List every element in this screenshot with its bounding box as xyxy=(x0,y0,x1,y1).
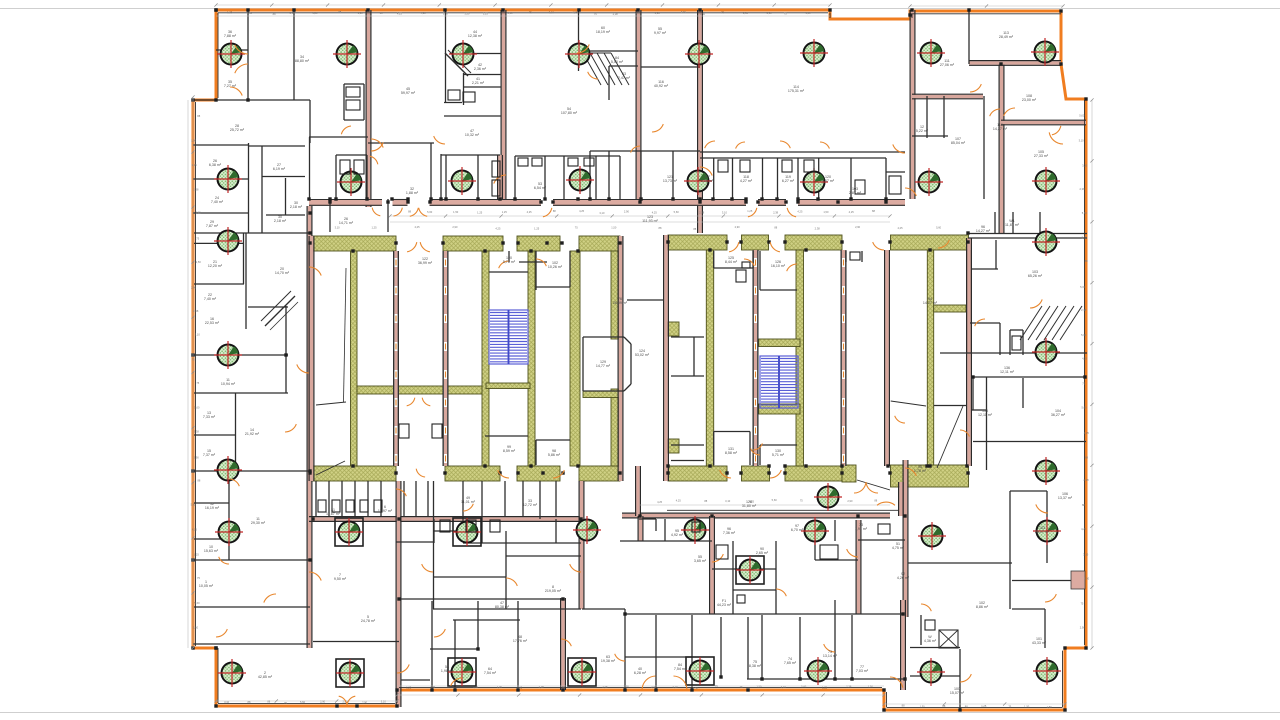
svg-text:18,19 m²: 18,19 m² xyxy=(596,30,611,34)
svg-text:3,10: 3,10 xyxy=(381,699,387,703)
svg-text:5,60: 5,60 xyxy=(936,226,942,230)
svg-text:4,25: 4,25 xyxy=(1082,357,1088,361)
svg-text:1,78 m²: 1,78 m² xyxy=(914,469,927,473)
svg-text:3,10: 3,10 xyxy=(1079,138,1085,142)
svg-text:2,38: 2,38 xyxy=(1079,187,1085,191)
svg-text:2,90: 2,90 xyxy=(452,225,458,229)
svg-text:8,58 m²: 8,58 m² xyxy=(725,451,738,455)
svg-text:107,80 m²: 107,80 m² xyxy=(561,111,578,115)
svg-text:111,93 m²: 111,93 m² xyxy=(642,219,658,223)
svg-text:5,60: 5,60 xyxy=(1081,333,1087,337)
svg-text:2,47 m²: 2,47 m² xyxy=(618,76,631,80)
svg-text:15,07 m²: 15,07 m² xyxy=(950,691,965,695)
svg-text:1,50: 1,50 xyxy=(611,226,617,230)
svg-text:1,25: 1,25 xyxy=(655,11,661,15)
svg-text:5,22 m²: 5,22 m² xyxy=(916,129,929,133)
svg-text:6,27 m²: 6,27 m² xyxy=(782,179,795,183)
svg-text:1,25: 1,25 xyxy=(477,210,483,214)
svg-text:1,50: 1,50 xyxy=(693,686,699,690)
svg-text:7,40 m²: 7,40 m² xyxy=(204,297,217,301)
svg-text:17,76 m²: 17,76 m² xyxy=(513,639,528,643)
svg-text:12,97 m²: 12,97 m² xyxy=(378,509,393,513)
svg-text:6,70 m²: 6,70 m² xyxy=(791,528,804,532)
svg-text:29,30 m²: 29,30 m² xyxy=(251,521,266,525)
svg-text:175,31 m²: 175,31 m² xyxy=(788,89,805,93)
svg-text:2,90: 2,90 xyxy=(191,285,197,289)
svg-text:12,38 m²: 12,38 m² xyxy=(468,34,483,38)
svg-text:10,32 m²: 10,32 m² xyxy=(465,133,480,137)
svg-text:31,80 m²: 31,80 m² xyxy=(742,504,757,508)
svg-text:2,18 m²: 2,18 m² xyxy=(274,219,287,223)
svg-text:80,38 m²: 80,38 m² xyxy=(495,605,510,609)
svg-text:26,99 m²: 26,99 m² xyxy=(613,301,628,305)
svg-text:2,38: 2,38 xyxy=(624,684,630,688)
svg-text:4,27 m²: 4,27 m² xyxy=(740,179,753,183)
svg-text:10,94 m²: 10,94 m² xyxy=(221,382,236,386)
svg-text:4,25: 4,25 xyxy=(397,12,403,16)
svg-text:1,50: 1,50 xyxy=(196,260,202,264)
svg-text:4,26 m²: 4,26 m² xyxy=(897,576,910,580)
svg-text:7,33 m²: 7,33 m² xyxy=(203,415,216,419)
svg-text:1,25: 1,25 xyxy=(406,685,412,689)
svg-text:27,06 m²: 27,06 m² xyxy=(940,63,955,67)
svg-text:3,10: 3,10 xyxy=(722,211,728,215)
svg-text:85,04 m²: 85,04 m² xyxy=(951,141,966,145)
svg-text:88,80 m²: 88,80 m² xyxy=(295,59,310,63)
svg-text:8,86 m²: 8,86 m² xyxy=(976,605,989,609)
svg-text:5,60: 5,60 xyxy=(1081,406,1087,410)
svg-text:2,36 m²: 2,36 m² xyxy=(474,67,487,71)
svg-text:3,10: 3,10 xyxy=(1083,553,1089,557)
svg-text:2,38: 2,38 xyxy=(1083,478,1089,482)
svg-text:1,91 m²: 1,91 m² xyxy=(855,527,868,531)
svg-text:2,38: 2,38 xyxy=(815,227,821,231)
svg-text:13,14 m²: 13,14 m² xyxy=(823,654,838,658)
svg-text:2,21 m²: 2,21 m² xyxy=(472,81,485,85)
svg-text:2,90: 2,90 xyxy=(194,456,200,460)
svg-text:2,38: 2,38 xyxy=(602,685,608,689)
svg-text:14,77 m²: 14,77 m² xyxy=(596,364,611,368)
svg-text:1,25: 1,25 xyxy=(981,704,987,708)
svg-text:8,59 m²: 8,59 m² xyxy=(503,449,516,453)
svg-text:5,60: 5,60 xyxy=(517,686,523,690)
svg-text:1,25: 1,25 xyxy=(371,226,377,230)
svg-text:4,25: 4,25 xyxy=(797,209,803,213)
svg-text:2,38: 2,38 xyxy=(743,11,749,15)
svg-text:4,25: 4,25 xyxy=(849,210,855,214)
svg-text:5,50 m²: 5,50 m² xyxy=(611,60,624,64)
svg-text:2,90: 2,90 xyxy=(847,499,853,503)
svg-text:1,98 m²: 1,98 m² xyxy=(441,669,454,673)
svg-text:2,38: 2,38 xyxy=(1082,236,1088,240)
svg-text:4,36 m²: 4,36 m² xyxy=(924,639,937,643)
svg-text:5,60: 5,60 xyxy=(801,684,807,688)
svg-text:2,90: 2,90 xyxy=(195,211,201,215)
svg-text:28,49 m²: 28,49 m² xyxy=(999,35,1014,39)
svg-text:7,40 m²: 7,40 m² xyxy=(211,200,224,204)
svg-text:7,54 m²: 7,54 m² xyxy=(674,667,687,671)
svg-text:3,10: 3,10 xyxy=(335,226,341,230)
svg-text:1,50: 1,50 xyxy=(247,11,253,15)
svg-text:7,87 m²: 7,87 m² xyxy=(206,224,219,228)
svg-text:7,54 m²: 7,54 m² xyxy=(484,671,497,675)
svg-text:1,50: 1,50 xyxy=(868,685,874,689)
svg-text:1,50: 1,50 xyxy=(1084,577,1090,581)
svg-text:86,17 m²: 86,17 m² xyxy=(1035,530,1050,534)
svg-text:4,25: 4,25 xyxy=(1084,431,1090,435)
svg-text:1,25: 1,25 xyxy=(822,685,828,689)
svg-text:3,10: 3,10 xyxy=(195,332,201,336)
svg-text:8,44 m²: 8,44 m² xyxy=(725,260,738,264)
svg-text:1,88 m²: 1,88 m² xyxy=(406,191,419,195)
svg-text:27,33 m²: 27,33 m² xyxy=(1034,154,1049,158)
svg-text:8,38 m²: 8,38 m² xyxy=(749,664,762,668)
svg-text:2,90: 2,90 xyxy=(320,699,326,703)
svg-text:43,33 m²: 43,33 m² xyxy=(1032,641,1047,645)
svg-text:1,50: 1,50 xyxy=(823,210,829,214)
svg-text:1,50: 1,50 xyxy=(756,684,762,688)
svg-text:1,25: 1,25 xyxy=(194,553,200,557)
svg-text:36,27 m²: 36,27 m² xyxy=(1051,413,1066,417)
svg-text:1,25: 1,25 xyxy=(483,11,489,15)
svg-text:1,50: 1,50 xyxy=(1024,704,1030,708)
svg-text:1,25: 1,25 xyxy=(227,10,233,14)
svg-text:2,90: 2,90 xyxy=(362,700,368,704)
svg-text:7,65 m²: 7,65 m² xyxy=(784,661,797,665)
svg-text:1,50: 1,50 xyxy=(700,12,706,16)
svg-text:14,71 m²: 14,71 m² xyxy=(339,221,354,225)
svg-text:3,10: 3,10 xyxy=(599,211,605,215)
svg-text:59,97 m²: 59,97 m² xyxy=(401,91,416,95)
svg-text:7,88 m²: 7,88 m² xyxy=(224,34,237,38)
svg-text:16,10 m²: 16,10 m² xyxy=(771,264,786,268)
svg-text:2,38: 2,38 xyxy=(1081,308,1087,312)
svg-text:5,60: 5,60 xyxy=(1082,211,1088,215)
svg-text:1,25: 1,25 xyxy=(358,11,364,15)
svg-text:14,27 m²: 14,27 m² xyxy=(976,229,991,233)
svg-text:2,38: 2,38 xyxy=(290,11,296,15)
svg-text:1,25: 1,25 xyxy=(534,226,540,230)
svg-text:1,50: 1,50 xyxy=(464,11,470,15)
svg-text:10,26 m²: 10,26 m² xyxy=(548,265,563,269)
svg-text:42,85 m²: 42,85 m² xyxy=(258,675,273,679)
svg-text:21,92 m²: 21,92 m² xyxy=(245,432,260,436)
svg-text:1,25: 1,25 xyxy=(192,163,198,167)
svg-text:1,50: 1,50 xyxy=(805,11,811,15)
svg-text:7,27 m²: 7,27 m² xyxy=(224,84,237,88)
svg-text:4,25: 4,25 xyxy=(657,500,663,504)
svg-text:4,92 m²: 4,92 m² xyxy=(671,533,684,537)
svg-text:6,28 m²: 6,28 m² xyxy=(634,671,647,675)
svg-text:2,38: 2,38 xyxy=(539,685,545,689)
svg-text:6,38 m²: 6,38 m² xyxy=(209,163,222,167)
svg-text:7,67 m²: 7,67 m² xyxy=(822,179,835,183)
svg-text:23,00 m²: 23,00 m² xyxy=(1022,98,1037,102)
svg-text:5,60: 5,60 xyxy=(194,601,200,605)
svg-text:9,50 m²: 9,50 m² xyxy=(334,577,347,581)
svg-text:3,10: 3,10 xyxy=(781,685,787,689)
svg-text:2,38: 2,38 xyxy=(193,309,199,313)
svg-text:12,11 m²: 12,11 m² xyxy=(1000,370,1015,374)
svg-text:5,60: 5,60 xyxy=(1080,285,1086,289)
svg-text:4,25: 4,25 xyxy=(579,209,585,213)
svg-text:15,63 m²: 15,63 m² xyxy=(204,549,219,553)
svg-text:2,90: 2,90 xyxy=(855,225,861,229)
svg-text:16,19 m²: 16,19 m² xyxy=(205,506,220,510)
svg-text:10,05 m²: 10,05 m² xyxy=(199,584,214,588)
svg-text:5,60: 5,60 xyxy=(194,406,200,410)
svg-text:44,23 m²: 44,23 m² xyxy=(717,603,732,607)
svg-text:2,38: 2,38 xyxy=(443,11,449,15)
svg-text:5,60: 5,60 xyxy=(681,10,687,14)
svg-text:2,90: 2,90 xyxy=(624,209,630,213)
svg-text:2,38: 2,38 xyxy=(773,211,779,215)
svg-text:7,03 m²: 7,03 m² xyxy=(856,669,869,673)
svg-text:4,25: 4,25 xyxy=(430,685,436,689)
svg-text:1,50: 1,50 xyxy=(635,10,641,14)
svg-text:12,20 m²: 12,20 m² xyxy=(208,264,223,268)
svg-text:11,87 m²: 11,87 m² xyxy=(1005,223,1020,227)
svg-text:4,25: 4,25 xyxy=(495,226,501,230)
svg-text:4,25: 4,25 xyxy=(421,11,427,15)
svg-text:1,50: 1,50 xyxy=(453,210,459,214)
svg-text:5,60: 5,60 xyxy=(193,626,199,630)
svg-text:2,38: 2,38 xyxy=(193,187,199,191)
svg-text:7,37 m²: 7,37 m² xyxy=(203,453,216,457)
svg-text:14,27 m²: 14,27 m² xyxy=(993,127,1008,131)
svg-text:5,71 m²: 5,71 m² xyxy=(772,453,785,457)
svg-text:2,90: 2,90 xyxy=(1080,626,1086,630)
svg-text:14,27 m²: 14,27 m² xyxy=(923,301,938,305)
svg-text:6,19 m²: 6,19 m² xyxy=(273,167,286,171)
svg-text:25,72 m²: 25,72 m² xyxy=(230,128,245,132)
svg-text:2,87 m²: 2,87 m² xyxy=(849,191,862,195)
svg-text:1,25: 1,25 xyxy=(312,11,318,15)
svg-text:4,25: 4,25 xyxy=(572,11,578,15)
svg-text:2,38: 2,38 xyxy=(767,11,773,15)
svg-text:2,38: 2,38 xyxy=(194,429,200,433)
svg-text:65,26 m²: 65,26 m² xyxy=(1028,274,1043,278)
svg-text:1,50: 1,50 xyxy=(191,138,197,142)
svg-text:4,25: 4,25 xyxy=(1081,527,1087,531)
svg-text:5,60: 5,60 xyxy=(191,503,197,507)
svg-text:22,53 m²: 22,53 m² xyxy=(205,321,220,325)
svg-text:1,25: 1,25 xyxy=(502,210,508,214)
svg-text:3,10: 3,10 xyxy=(1082,163,1088,167)
svg-text:13,37 m²: 13,37 m² xyxy=(1058,496,1073,500)
svg-text:40,92 m²: 40,92 m² xyxy=(654,84,669,88)
svg-text:5,60: 5,60 xyxy=(507,11,513,15)
svg-text:12,11 m²: 12,11 m² xyxy=(978,413,993,417)
svg-text:11,01 m²: 11,01 m² xyxy=(461,500,476,504)
svg-text:5,60: 5,60 xyxy=(674,210,680,214)
svg-text:12,72 m²: 12,72 m² xyxy=(523,503,538,507)
svg-text:2,38: 2,38 xyxy=(699,210,705,214)
svg-text:219,05 m²: 219,05 m² xyxy=(545,589,562,593)
svg-text:2,65 m²: 2,65 m² xyxy=(756,551,769,555)
svg-text:4,25: 4,25 xyxy=(652,210,658,214)
svg-text:13,73 m²: 13,73 m² xyxy=(663,179,678,183)
svg-text:7,36 m²: 7,36 m² xyxy=(723,531,736,535)
svg-text:3,10: 3,10 xyxy=(725,499,731,503)
svg-text:19,38 m²: 19,38 m² xyxy=(601,659,616,663)
svg-text:11,67 m²: 11,67 m² xyxy=(326,512,341,516)
svg-text:1,50: 1,50 xyxy=(1047,705,1053,709)
svg-text:1,25: 1,25 xyxy=(747,209,753,213)
svg-text:9,97 m²: 9,97 m² xyxy=(654,31,667,35)
svg-text:4,25: 4,25 xyxy=(527,210,533,214)
svg-text:4,25: 4,25 xyxy=(676,498,682,502)
svg-text:6,54 m²: 6,54 m² xyxy=(534,186,547,190)
svg-text:5,86 m²: 5,86 m² xyxy=(548,453,561,457)
svg-text:4,75 m²: 4,75 m² xyxy=(892,546,905,550)
svg-text:5,60: 5,60 xyxy=(300,700,306,704)
svg-text:5,60: 5,60 xyxy=(772,498,778,502)
svg-text:5,06 m²: 5,06 m² xyxy=(701,179,714,183)
svg-text:2,38: 2,38 xyxy=(846,685,852,689)
svg-text:3,10: 3,10 xyxy=(224,700,230,704)
svg-text:3,65 m²: 3,65 m² xyxy=(694,559,707,563)
svg-text:1,50: 1,50 xyxy=(920,705,926,709)
svg-text:4,25: 4,25 xyxy=(897,226,903,230)
svg-text:24,78 m²: 24,78 m² xyxy=(361,619,376,623)
svg-text:2,90: 2,90 xyxy=(735,225,741,229)
svg-text:5,60: 5,60 xyxy=(1079,114,1085,118)
svg-text:4,25: 4,25 xyxy=(414,225,420,229)
svg-text:2,18 m²: 2,18 m² xyxy=(290,205,303,209)
svg-text:3,10: 3,10 xyxy=(672,685,678,689)
svg-text:2,38: 2,38 xyxy=(613,12,619,16)
svg-text:14,70 m²: 14,70 m² xyxy=(275,271,290,275)
svg-text:4,25: 4,25 xyxy=(192,528,198,532)
svg-text:2,38: 2,38 xyxy=(651,685,657,689)
svg-text:5,78 m²: 5,78 m² xyxy=(503,260,516,264)
svg-text:53,02 m²: 53,02 m² xyxy=(635,353,650,357)
svg-text:5,60: 5,60 xyxy=(427,210,433,214)
svg-text:1,25: 1,25 xyxy=(497,685,503,689)
svg-text:3,10: 3,10 xyxy=(549,11,555,15)
svg-text:36,99 m²: 36,99 m² xyxy=(418,261,433,265)
